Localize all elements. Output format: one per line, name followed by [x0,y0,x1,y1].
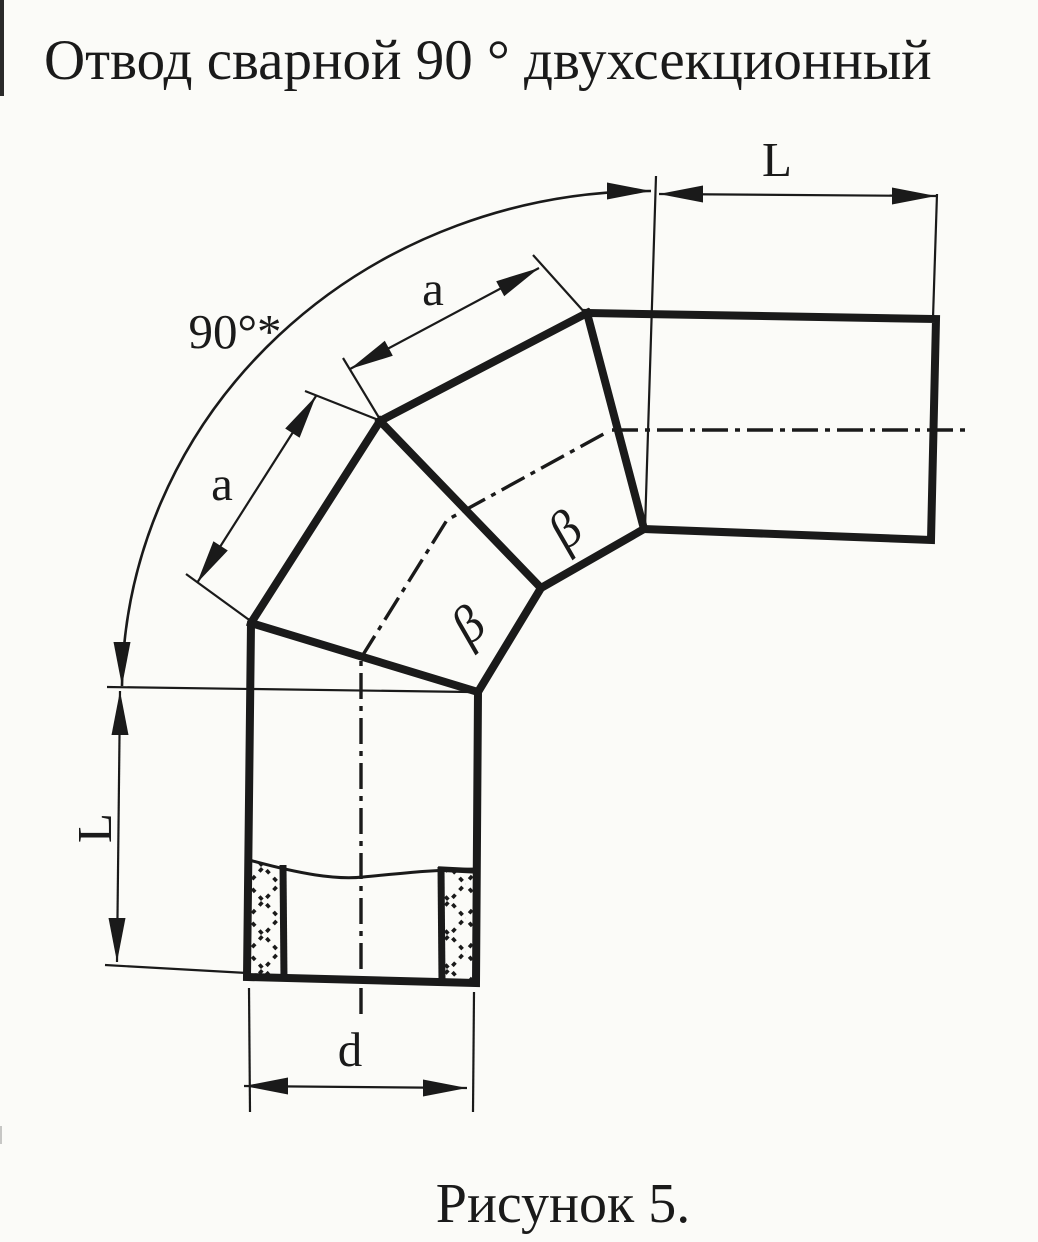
L-left-arrow-bottom [109,918,126,962]
scan-edge-artifact-bottom [0,1126,2,1144]
d-ext-line-right [473,992,474,1112]
L-top-label: L [762,132,792,187]
elbow-drawing: Отвод сварной 90 ° двухсекционный [0,0,1038,1242]
L-top-ext-line-left [645,176,656,529]
pipe-body [247,313,936,983]
hatch-band-right-inner-edge [441,867,442,981]
a-upper-arrow-left [350,341,393,369]
L-left-ext-line-bottom [105,965,247,973]
arc-arrow-top [607,183,651,200]
dimension-a-upper: a [343,255,586,421]
weld-seam-lower [251,623,478,692]
weld-seams [251,313,644,692]
d-arrow-right [423,1080,467,1097]
weld-seam-upper [587,313,644,529]
arc-arrow-bottom [114,642,131,686]
scan-edge-artifact-top [0,0,4,96]
socket-hatch [249,860,477,981]
a-lower-ext-line-right [305,391,381,421]
d-label: d [338,1022,363,1077]
a-upper-label: a [422,261,444,316]
L-left-ext-line-top [107,687,470,692]
figure-title: Отвод сварной 90 ° двухсекционный [44,29,932,92]
a-lower-arrow-right [285,396,316,438]
L-top-ext-line-right [933,194,937,318]
angle-label: 90°* [188,304,281,359]
hatch-band-left [249,863,283,978]
angle-arc [122,191,651,686]
a-upper-ext-line-right [533,255,586,314]
weld-seam-middle [380,421,541,588]
d-ext-line-left [249,988,250,1112]
hatch-band-left-inner-edge [283,865,284,980]
L-top-arrow-left [659,186,703,203]
angle-arc-dimension: 90°* [114,183,652,687]
hatch-band-right [441,868,475,981]
scanned-drawing-sheet: Отвод сварной 90 ° двухсекционный [0,0,1038,1242]
dimension-a-lower: a [186,391,381,622]
upper-gore-outer-edge [380,313,587,421]
beta-upper-label: β [536,500,593,561]
figure-caption: Рисунок 5. [436,1173,690,1235]
a-upper-arrow-right [496,268,539,296]
L-left-label: L [67,813,122,843]
a-upper-ext-line-left [343,358,381,421]
a-lower-arrow-left [197,541,228,583]
dimension-d: d [244,988,474,1112]
a-lower-ext-line-left [186,574,252,622]
dimension-L-top: L [645,132,937,529]
beta-lower-label: β [439,595,496,656]
L-top-arrow-right [892,188,936,205]
a-lower-label: a [211,456,233,511]
L-left-arrow-top [112,691,129,735]
